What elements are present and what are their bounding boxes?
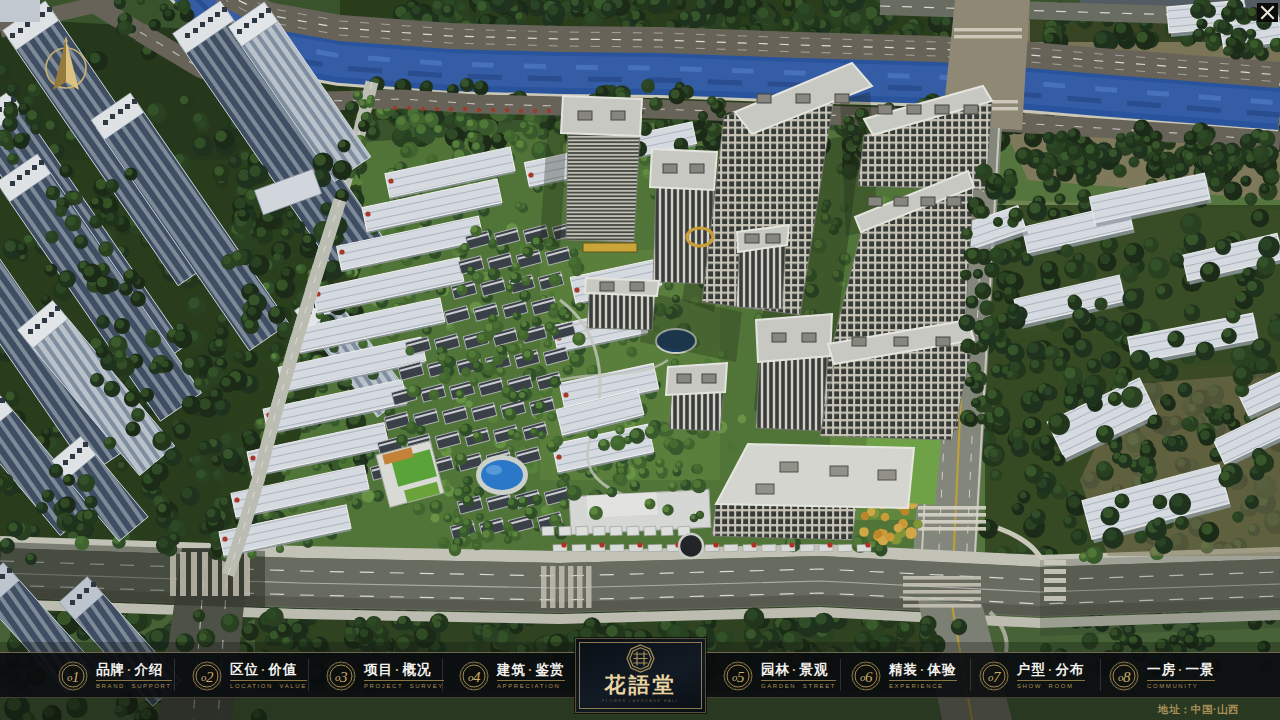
svg-text:3: 3 bbox=[339, 669, 348, 685]
svg-text:6: 6 bbox=[865, 669, 873, 685]
svg-text:8: 8 bbox=[1123, 669, 1131, 685]
svg-text:4: 4 bbox=[473, 669, 481, 685]
svg-text:5: 5 bbox=[737, 669, 745, 685]
svg-text:花語堂: 花語堂 bbox=[604, 673, 677, 697]
svg-text:FLOWER LANGUAGE HALL: FLOWER LANGUAGE HALL bbox=[602, 699, 679, 703]
svg-text:1: 1 bbox=[72, 669, 80, 685]
svg-text:2: 2 bbox=[206, 669, 214, 685]
